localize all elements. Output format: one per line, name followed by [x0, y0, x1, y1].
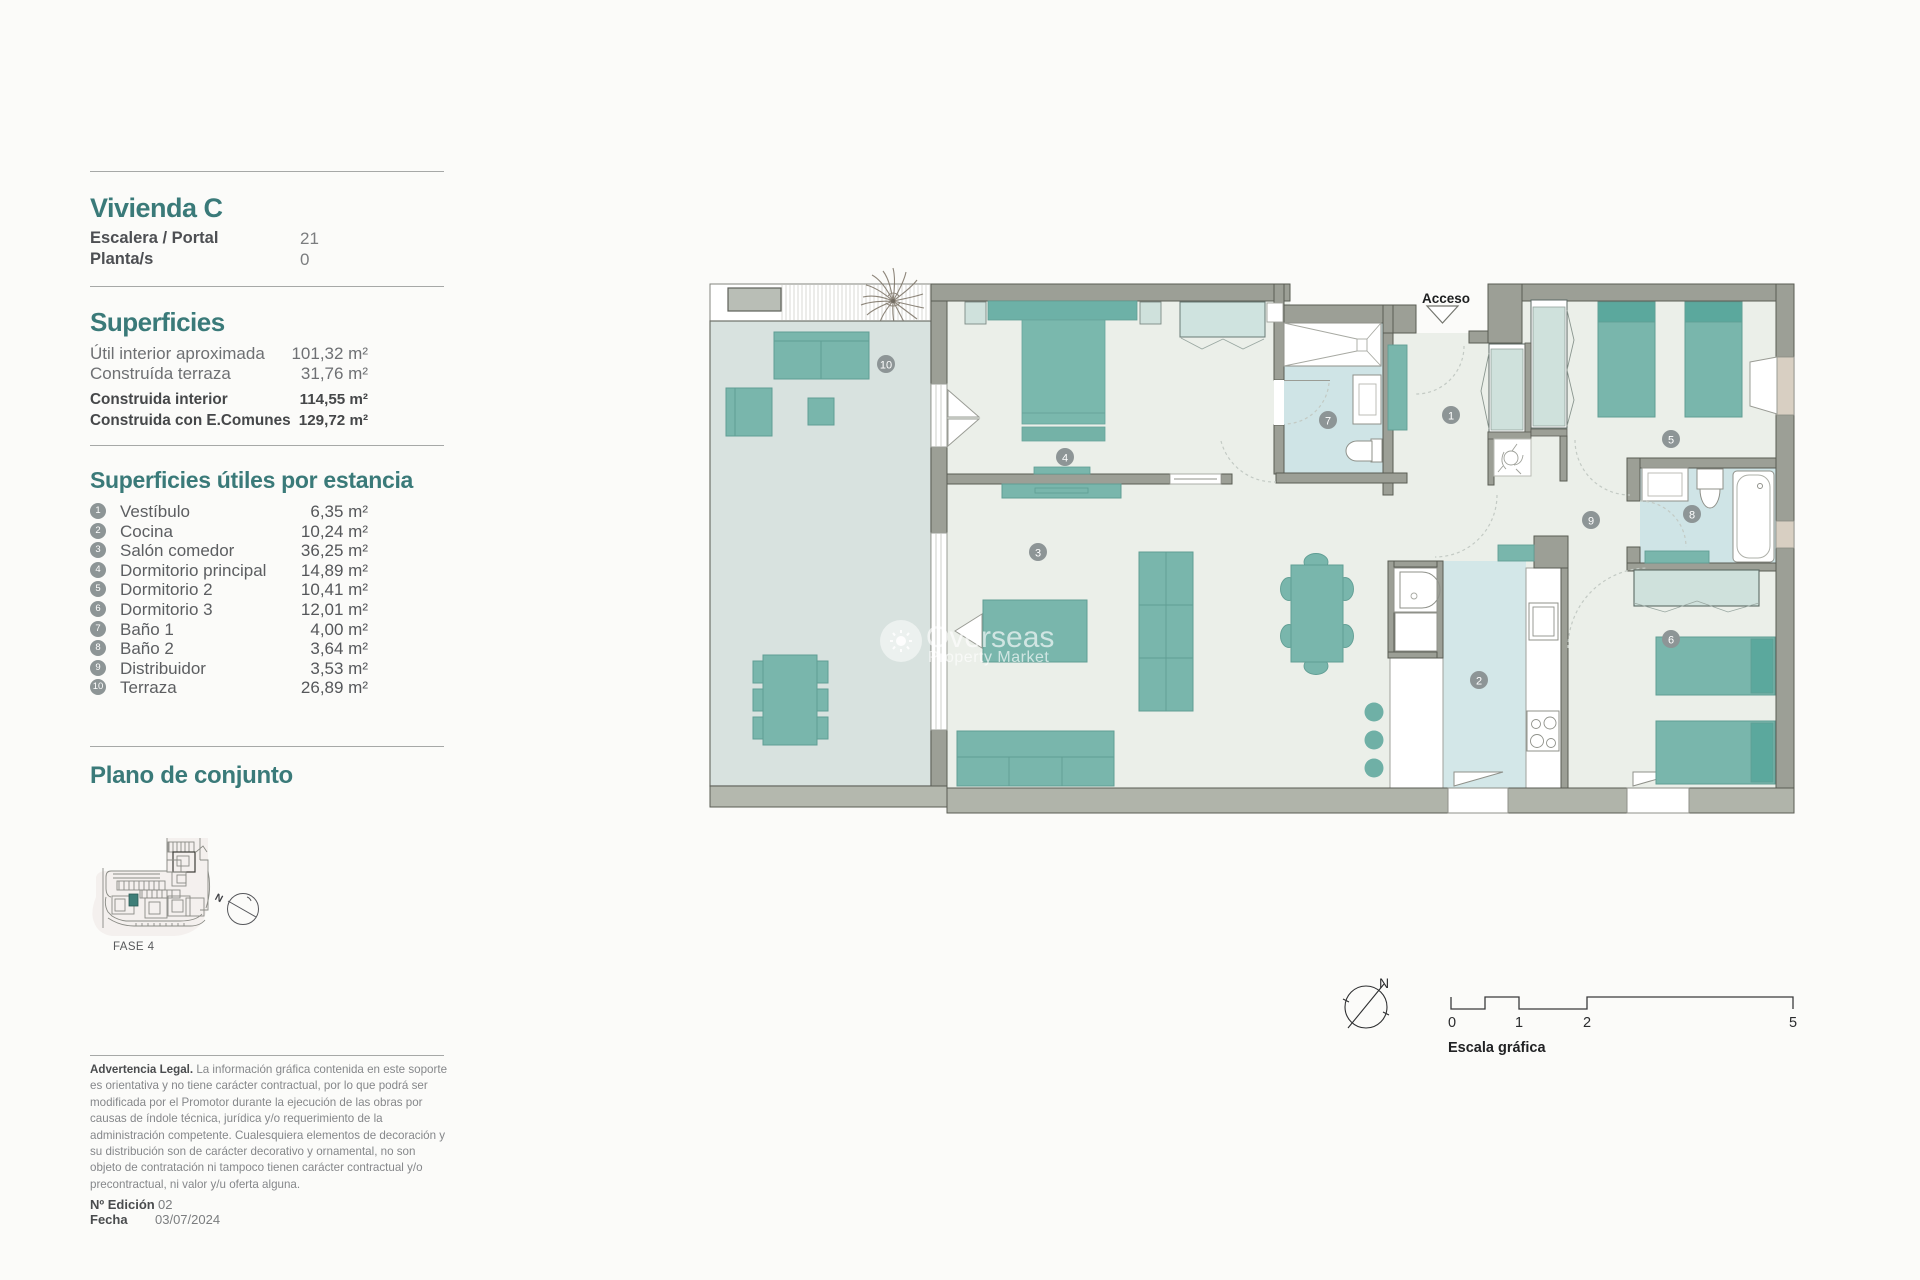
svg-text:7: 7 — [1325, 416, 1331, 428]
svg-text:Property Market: Property Market — [928, 649, 1049, 666]
svg-text:N: N — [213, 892, 225, 905]
svg-text:3: 3 — [1035, 548, 1041, 560]
svg-text:Acceso: Acceso — [1422, 291, 1470, 306]
svg-text:9: 9 — [1588, 516, 1594, 528]
svg-text:10: 10 — [880, 360, 892, 372]
svg-text:5: 5 — [1789, 1015, 1797, 1031]
svg-text:0: 0 — [1448, 1015, 1456, 1031]
svg-text:8: 8 — [1689, 510, 1695, 522]
svg-text:2: 2 — [1583, 1015, 1591, 1031]
svg-text:5: 5 — [1668, 435, 1674, 447]
svg-text:N: N — [1379, 975, 1389, 991]
svg-text:4: 4 — [1062, 453, 1068, 465]
svg-text:1: 1 — [1515, 1015, 1523, 1031]
svg-text:Escala gráfica: Escala gráfica — [1448, 1040, 1546, 1056]
svg-text:1: 1 — [1448, 411, 1454, 423]
svg-text:2: 2 — [1476, 676, 1482, 688]
svg-text:6: 6 — [1668, 635, 1674, 647]
